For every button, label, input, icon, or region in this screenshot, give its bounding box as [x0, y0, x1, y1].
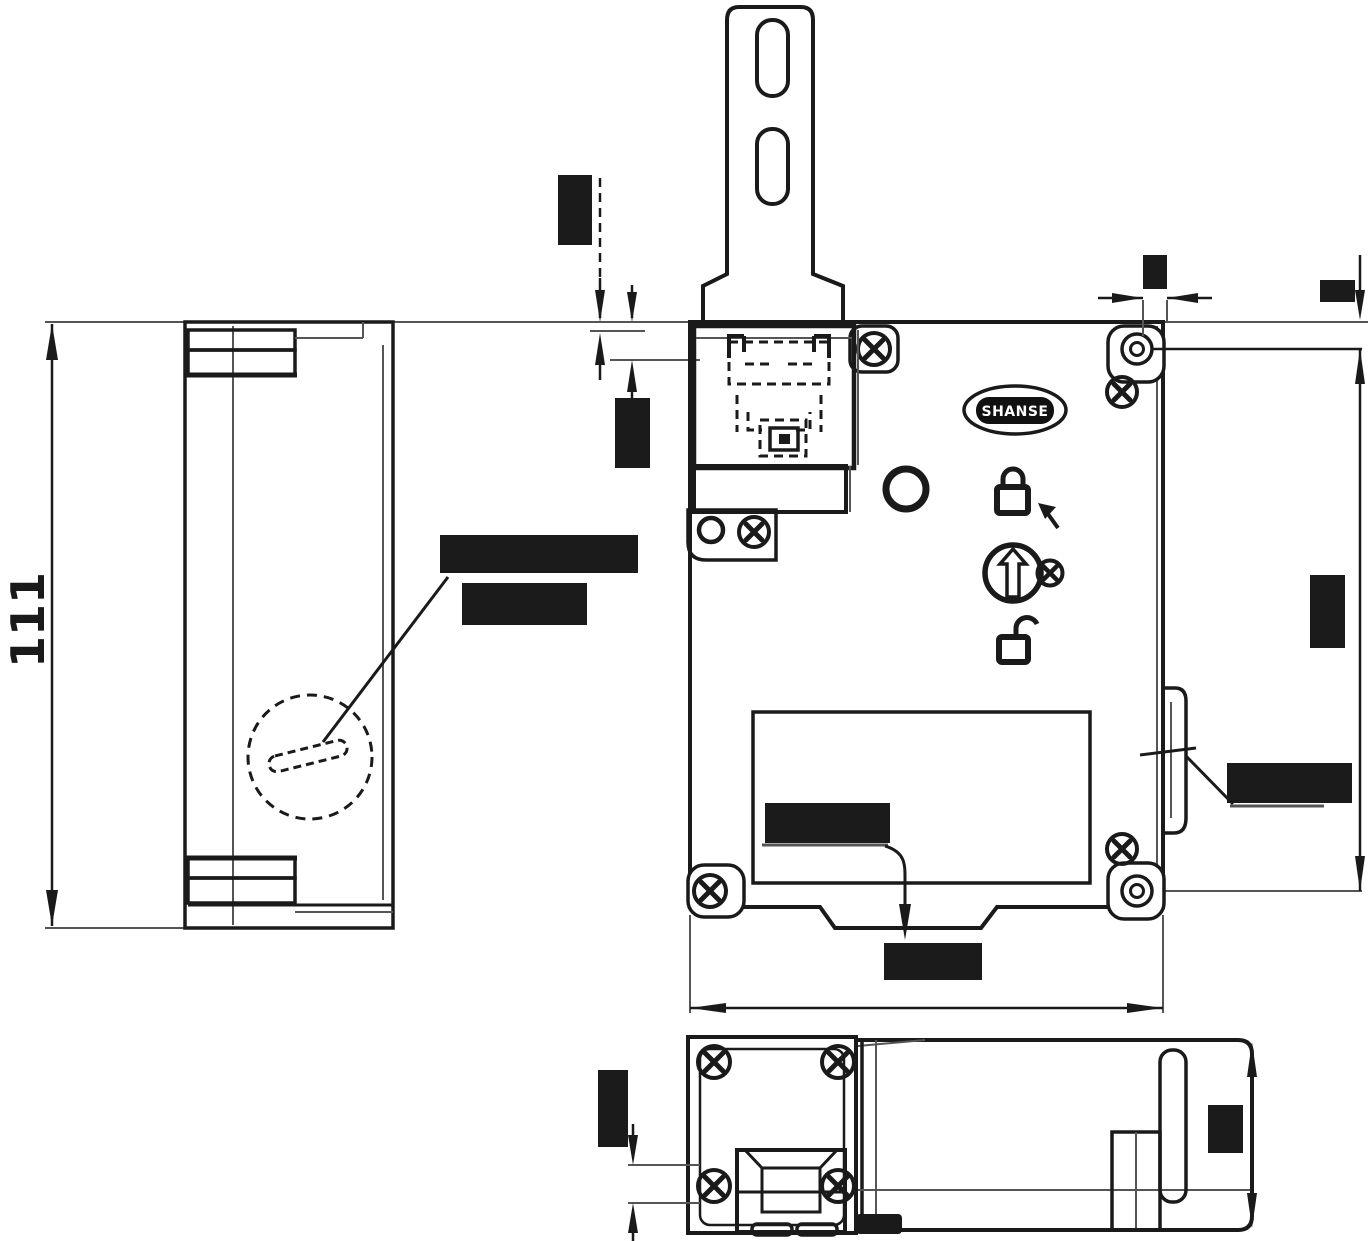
key-entry-boss	[737, 1150, 845, 1235]
redacted-side-clip-label	[1227, 763, 1352, 803]
head-internal-mechanism	[729, 336, 829, 456]
lockout-hole	[886, 469, 926, 509]
redacted-mounting-height-dim	[1310, 575, 1345, 648]
screw-icon	[822, 1170, 854, 1202]
wiring-cover	[753, 712, 1090, 883]
redacted-top-right-dim	[1320, 280, 1355, 302]
release-leader-line	[323, 577, 448, 742]
release-detail-circle	[248, 695, 372, 819]
engineering-drawing: 111	[0, 0, 1368, 1241]
side-bottom-blocks	[186, 858, 393, 912]
side-height-dimension: 111	[1, 324, 58, 926]
height-dimension-text: 111	[1, 572, 55, 668]
redacted-release-label-line2	[462, 583, 587, 625]
screw-icon	[739, 517, 769, 547]
side-view	[185, 322, 448, 928]
construction-lines	[45, 322, 1368, 928]
logo-text: SHANSE	[982, 404, 1049, 420]
bottom-side-clip	[1160, 1050, 1186, 1202]
side-clip	[1140, 688, 1324, 833]
release-slot	[267, 739, 348, 774]
head-flange	[694, 466, 846, 512]
pilot-hole	[699, 518, 723, 542]
screw-icon	[1107, 834, 1137, 864]
brand-logo: SHANSE	[964, 386, 1066, 434]
actuator-key	[703, 7, 843, 322]
bottom-right-tab	[1108, 863, 1164, 919]
drawing-sheet: 111	[0, 0, 1368, 1241]
side-top-blocks	[186, 322, 363, 375]
redacted-hole-offset-dim	[1143, 255, 1167, 289]
redacted-release-label-line1	[440, 535, 638, 573]
redacted-overall-width-dim	[884, 943, 982, 980]
bottom-left-tab	[688, 865, 744, 917]
actuator-entry-dimension	[595, 178, 605, 380]
bottom-head-screws	[698, 1046, 854, 1202]
body-outline	[690, 322, 1163, 928]
key-slot-lower	[757, 129, 788, 204]
redacted-bottom-depth-dim	[1208, 1105, 1243, 1153]
bottom-body	[856, 1040, 1252, 1234]
screw-icon	[698, 1170, 730, 1202]
front-view: SHANSE	[688, 255, 1365, 1013]
redacted-head-face-dim	[615, 398, 650, 468]
lock-selector-icons	[985, 469, 1063, 662]
redacted-bottom-left-dim	[598, 1070, 628, 1147]
screw-icon	[698, 1046, 730, 1078]
cover-label-leader	[762, 845, 911, 940]
padlock-locked-icon	[997, 469, 1028, 513]
head-face-dimension	[627, 285, 637, 402]
head-module	[688, 326, 858, 560]
rotary-selector-icon	[985, 545, 1041, 601]
bottom-dark-pad	[856, 1214, 902, 1234]
key-slot-upper	[757, 20, 788, 96]
redacted-cover-label	[765, 803, 890, 843]
padlock-unlocked-icon	[999, 618, 1037, 662]
redacted-actuator-entry-dim	[558, 175, 592, 245]
pointer-arrow-icon	[1038, 503, 1058, 528]
bottom-view	[628, 1037, 1257, 1241]
